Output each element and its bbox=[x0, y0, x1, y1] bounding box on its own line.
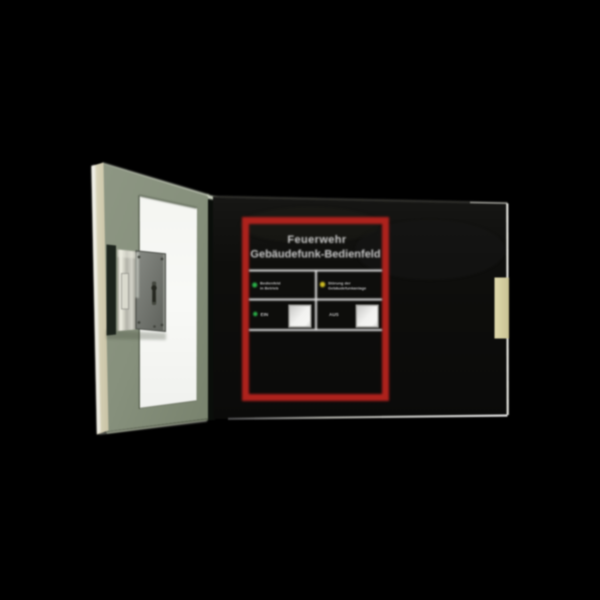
svg-text:in Betrieb: in Betrieb bbox=[260, 285, 279, 290]
svg-text:EIN: EIN bbox=[261, 312, 269, 317]
svg-text:Gebäudefunkanlage: Gebäudefunkanlage bbox=[328, 285, 367, 290]
svg-text:Gebäudefunk-Bedienfeld: Gebäudefunk-Bedienfeld bbox=[250, 249, 380, 261]
svg-text:Feuerwehr: Feuerwehr bbox=[287, 234, 347, 246]
svg-text:AUS: AUS bbox=[329, 312, 339, 317]
